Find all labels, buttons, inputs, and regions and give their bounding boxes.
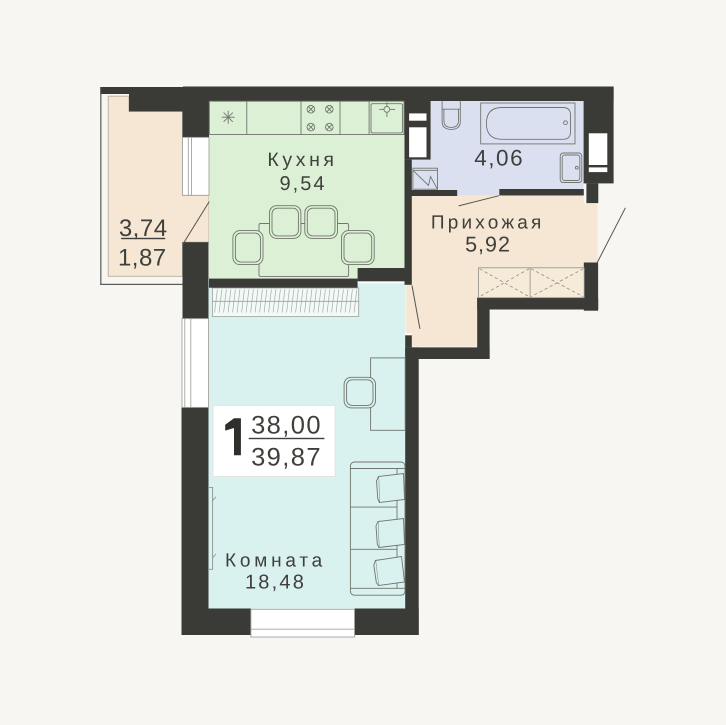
svg-text:Комната: Комната (225, 550, 326, 571)
svg-text:Кухня: Кухня (267, 149, 337, 171)
svg-text:Прихожая: Прихожая (431, 212, 545, 233)
svg-text:39,87: 39,87 (251, 444, 322, 472)
svg-text:4,06: 4,06 (474, 146, 524, 171)
svg-text:38,00: 38,00 (251, 411, 322, 439)
svg-text:9,54: 9,54 (280, 173, 327, 195)
svg-text:5,92: 5,92 (465, 233, 511, 257)
svg-text:1,87: 1,87 (118, 245, 167, 272)
svg-text:18,48: 18,48 (245, 571, 306, 593)
